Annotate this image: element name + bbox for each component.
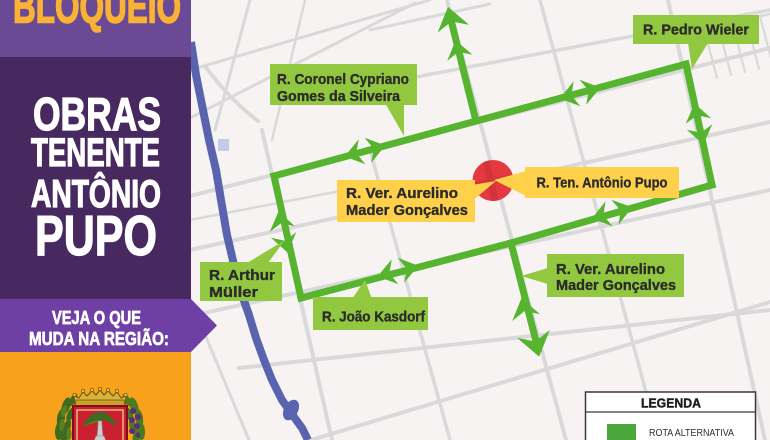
svg-text:R. Coronel Cypriano: R. Coronel Cypriano xyxy=(277,71,409,88)
svg-text:Mader Gonçalves: Mader Gonçalves xyxy=(346,202,468,219)
svg-text:R. Ten. Antônio Pupo: R. Ten. Antônio Pupo xyxy=(537,175,668,192)
svg-text:R. João Kasdorf: R. João Kasdorf xyxy=(322,309,426,326)
svg-text:LEGENDA: LEGENDA xyxy=(641,396,702,411)
svg-text:MUDA NA REGIÃO:: MUDA NA REGIÃO: xyxy=(29,327,169,349)
svg-text:PUPO: PUPO xyxy=(35,204,157,268)
svg-text:R. Arthur: R. Arthur xyxy=(209,267,275,284)
svg-text:Mader Gonçalves: Mader Gonçalves xyxy=(556,277,676,294)
svg-text:Gomes da Silveira: Gomes da Silveira xyxy=(277,88,401,105)
svg-text:Müller: Müller xyxy=(209,284,258,301)
svg-text:VEJA O QUE: VEJA O QUE xyxy=(52,307,141,328)
svg-text:TENENTE: TENENTE xyxy=(31,129,160,175)
svg-text:R. Ver. Aurelino: R. Ver. Aurelino xyxy=(346,185,458,202)
svg-text:R. Ver. Aurelino: R. Ver. Aurelino xyxy=(556,261,665,278)
svg-text:ROTA ALTERNATIVA: ROTA ALTERNATIVA xyxy=(649,427,734,439)
svg-text:R. Pedro Wieler: R. Pedro Wieler xyxy=(643,22,749,39)
svg-text:BLOQUEIO: BLOQUEIO xyxy=(13,0,181,33)
